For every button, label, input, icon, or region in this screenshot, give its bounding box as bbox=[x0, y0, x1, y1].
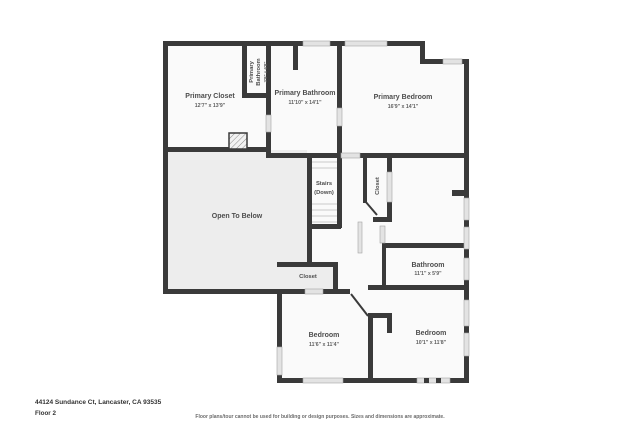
shower-box bbox=[229, 133, 247, 149]
disclaimer-text: Floor plans/tour cannot be used for buil… bbox=[0, 414, 640, 420]
door-opening bbox=[358, 222, 362, 253]
window bbox=[345, 41, 387, 46]
svg-text:Bathroom: Bathroom bbox=[411, 262, 444, 269]
door-opening bbox=[266, 115, 271, 132]
svg-text:10'1" x 11'8": 10'1" x 11'8" bbox=[416, 340, 447, 346]
window bbox=[303, 41, 330, 46]
window bbox=[464, 227, 469, 249]
window bbox=[464, 198, 469, 220]
svg-text:Bedroom: Bedroom bbox=[309, 332, 340, 339]
room-label-bedroom-closet: Closet bbox=[299, 274, 317, 280]
floor-plan-drawing: Primary Closet 12'7" x 13'9" Primary Bat… bbox=[0, 0, 640, 427]
svg-text:Stairs: Stairs bbox=[316, 181, 332, 187]
window bbox=[277, 347, 282, 375]
door-opening bbox=[337, 108, 342, 126]
window bbox=[464, 300, 469, 326]
svg-text:11'6" x 11'4": 11'6" x 11'4" bbox=[309, 342, 339, 348]
property-address: 44124 Sundance Ct, Lancaster, CA 93535 bbox=[35, 399, 161, 406]
svg-text:Primary Bathroom: Primary Bathroom bbox=[274, 90, 335, 97]
svg-text:11'1" x 5'9": 11'1" x 5'9" bbox=[414, 271, 442, 277]
svg-text:Bathroom: Bathroom bbox=[256, 58, 262, 85]
door-opening bbox=[305, 289, 323, 294]
svg-text:Primary: Primary bbox=[249, 60, 255, 82]
door-opening bbox=[380, 226, 385, 243]
floor-plan-page: Primary Closet 12'7" x 13'9" Primary Bat… bbox=[0, 0, 640, 427]
svg-text:16'9" x 14'1": 16'9" x 14'1" bbox=[388, 104, 419, 110]
door-opening bbox=[387, 172, 392, 202]
room-label-open-to-below: Open To Below bbox=[212, 213, 263, 220]
window bbox=[303, 378, 343, 383]
window bbox=[464, 258, 469, 280]
svg-text:Primary Closet: Primary Closet bbox=[185, 93, 235, 100]
svg-text:3'9" x 6'8": 3'9" x 6'8" bbox=[263, 62, 268, 83]
svg-text:Bedroom: Bedroom bbox=[416, 330, 447, 337]
window bbox=[464, 333, 469, 356]
room-label-hall-closet: Closet bbox=[375, 177, 381, 195]
room-label-primary-bathroom-small: Primary Bathroom 3'9" x 6'8" bbox=[249, 58, 268, 85]
window bbox=[417, 378, 450, 383]
svg-text:12'7" x 13'9": 12'7" x 13'9" bbox=[195, 103, 226, 109]
door-opening bbox=[341, 153, 360, 158]
svg-text:Closet: Closet bbox=[375, 177, 381, 195]
svg-text:Open To Below: Open To Below bbox=[212, 213, 263, 220]
svg-text:11'10" x 14'1": 11'10" x 14'1" bbox=[288, 100, 322, 106]
window bbox=[443, 59, 462, 64]
svg-text:Closet: Closet bbox=[299, 274, 317, 280]
svg-text:Primary Bedroom: Primary Bedroom bbox=[374, 94, 433, 101]
svg-text:(Down): (Down) bbox=[314, 190, 334, 196]
